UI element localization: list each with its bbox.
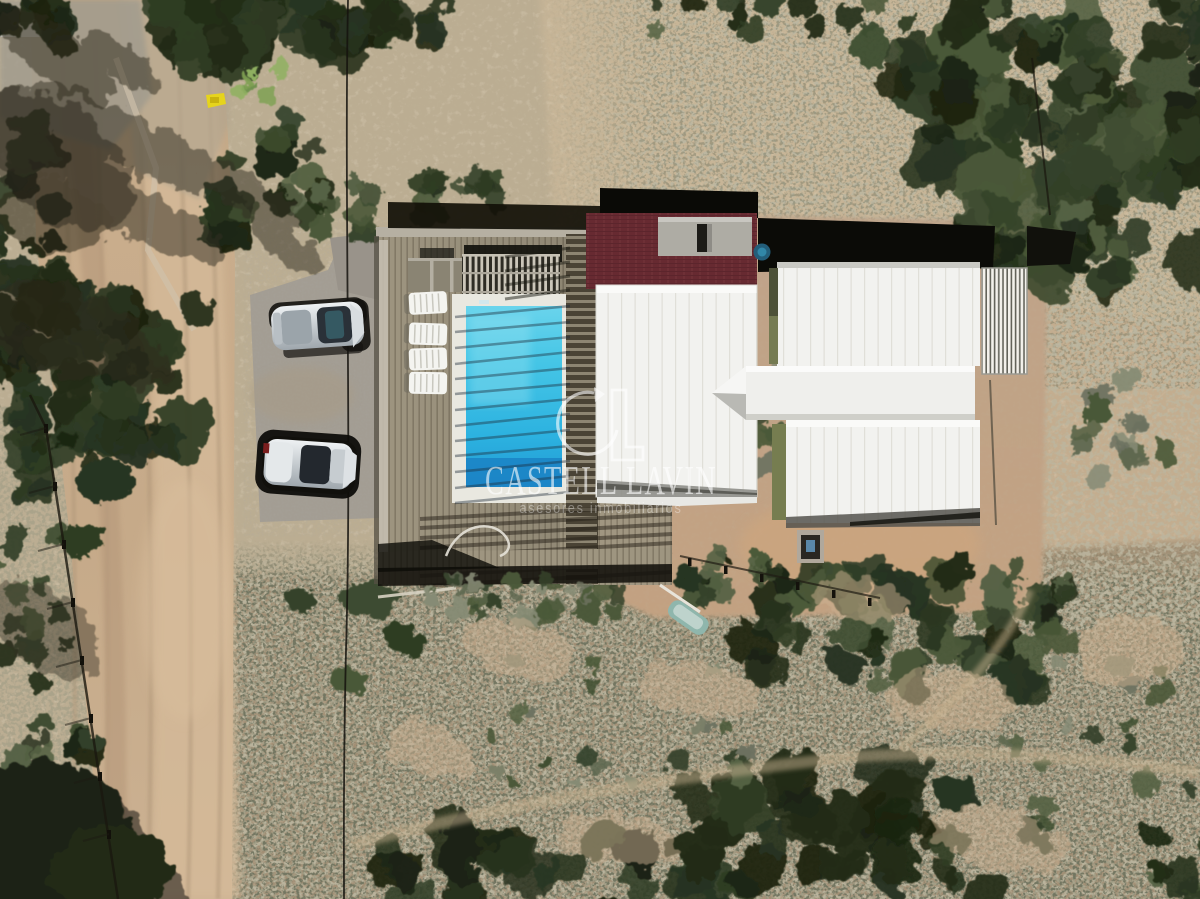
svg-text:CASTELL LAVIN: CASTELL LAVIN: [485, 457, 717, 503]
svg-text:asesores inmobiliarios: asesores inmobiliarios: [520, 500, 683, 517]
